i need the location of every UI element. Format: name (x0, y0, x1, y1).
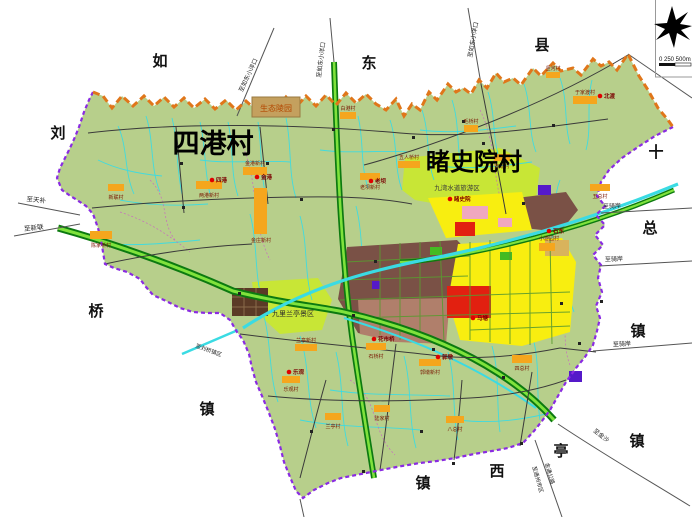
road-marker (432, 348, 435, 351)
edge-label: 刘 (50, 124, 65, 142)
village-label: 五总村 (592, 193, 607, 200)
village-label: 老坝新村 (360, 184, 380, 191)
village-label: 乐观村 (283, 386, 298, 393)
edge-label: 镇 (415, 474, 430, 492)
village-label: 新联村 (108, 194, 123, 201)
village-housing-block (464, 125, 478, 132)
settlement-label: 花市桥 (378, 335, 395, 343)
road-label: 至通州市区 (530, 465, 545, 494)
village-housing-block (108, 184, 124, 191)
road-label: 至骑岸 (613, 340, 631, 349)
village-housing-block (254, 188, 267, 234)
road-label: 金通公路 (543, 462, 557, 486)
edge-label: 桥 (88, 302, 104, 320)
village-housing-block (325, 413, 341, 420)
village-housing-block (90, 231, 112, 239)
edge-label: 如 (152, 52, 167, 70)
settlement-label: 马塘 (477, 314, 489, 322)
village-label: 毛桥村 (463, 118, 478, 125)
village-housing-block (398, 161, 420, 168)
settlement-dot (372, 337, 377, 342)
block-purple3 (569, 371, 582, 382)
village-housing-block (419, 359, 441, 366)
village-plan-map: 两港新村金港新村金庄新村新联村陈家桥村白港村老坝新村五人桥村石北村毛桥村于家渡村… (0, 0, 692, 517)
road-marker (182, 206, 185, 209)
region-title: 四港村 (173, 129, 254, 159)
village-housing-block (539, 243, 555, 251)
village-label: 白港村 (340, 105, 355, 112)
village-label: 金庄新村 (251, 237, 271, 244)
settlement-label: 乐观 (293, 368, 305, 376)
edge-label: 县 (534, 37, 549, 54)
village-label: 于家渡村 (575, 89, 595, 96)
road-marker (420, 430, 423, 433)
settlement-label: 老坝 (374, 177, 387, 185)
scale-text: 0 250 500m (659, 57, 691, 63)
block-purple1 (372, 281, 380, 289)
road-label: 至如东小洋口 (315, 41, 327, 78)
village-housing-block (573, 96, 597, 104)
road-marker (412, 136, 415, 139)
road-marker (300, 198, 303, 201)
village-label: 石桥村 (368, 353, 383, 360)
road-marker (552, 124, 555, 127)
road-marker (266, 162, 269, 165)
village-label: 小游园村 (539, 235, 559, 242)
settlement-label: 石东 (552, 227, 565, 235)
north-arrow-icon (654, 6, 692, 48)
village-label: 金港新村 (245, 160, 265, 167)
village-label: 陈家桥村 (91, 242, 111, 249)
village-housing-block (340, 112, 356, 119)
area-label: 九里兰亭景区 (272, 309, 314, 318)
edge-label: 总 (642, 219, 657, 237)
edge-label: 东 (361, 54, 376, 72)
edge-label: 亭 (553, 442, 568, 460)
settlement-label: 睹史院 (454, 195, 471, 203)
road-marker (310, 430, 313, 433)
settlement-dot (210, 178, 215, 183)
road-label: 至金沙 (592, 427, 611, 444)
settlement-dot (448, 197, 453, 202)
road-marker (452, 462, 455, 465)
area-label: 九湾水道旅游区 (434, 183, 480, 192)
block-pink (462, 206, 488, 219)
settlement-label: 郭墩 (442, 353, 454, 361)
area-label: 生态陵园 (260, 103, 292, 113)
road-marker (180, 162, 183, 165)
settlement-dot (436, 355, 441, 360)
road-marker (522, 202, 525, 205)
village-housing-block (590, 184, 610, 191)
road-marker (520, 442, 523, 445)
block-purple2 (538, 185, 551, 195)
road-label: 至天补 (26, 194, 47, 205)
village-housing-block (295, 344, 317, 351)
edge-label: 镇 (199, 400, 214, 418)
road-marker (332, 128, 335, 131)
settlement-label: 金港 (260, 173, 273, 181)
road-marker (482, 142, 485, 145)
road-label: 至骑岸 (603, 202, 621, 211)
village-label: 郭墩新村 (420, 369, 440, 376)
edge-label: 镇 (629, 432, 644, 450)
block-pink-small (498, 218, 512, 227)
road-marker (560, 302, 563, 305)
scale-bar: 0 250 500m (659, 57, 691, 66)
village-housing-block (366, 343, 386, 350)
settlement-dot (287, 370, 292, 375)
settlement-label: 北渡 (604, 92, 616, 100)
road-label: 至刘桥镇区 (194, 342, 223, 359)
village-label: 两港新村 (199, 192, 219, 199)
village-housing-block (282, 376, 300, 383)
village-label: 八总村 (447, 426, 462, 433)
village-label: 四总村 (514, 365, 529, 372)
road-label: 至骑岸 (605, 255, 623, 264)
road-label: 至如东小洋口 (237, 57, 259, 93)
village-label: 五人桥村 (399, 154, 419, 161)
edge-label: 十 (648, 143, 663, 161)
road-label: 至如东小洋口 (466, 21, 480, 58)
map-canvas: 两港新村金港新村金庄新村新联村陈家桥村白港村老坝新村五人桥村石北村毛桥村于家渡村… (0, 0, 692, 517)
region-title: 睹史院村 (426, 148, 522, 176)
road-marker (374, 260, 377, 263)
village-housing-block (512, 355, 532, 363)
settlement-dot (598, 94, 603, 99)
road-marker (362, 470, 365, 473)
village-housing-block (374, 405, 390, 412)
road-marker (600, 300, 603, 303)
settlement-label: 四港 (216, 176, 228, 184)
village-housing-block (546, 72, 560, 78)
block-red-small (455, 222, 475, 236)
edge-label: 镇 (630, 322, 645, 340)
block-red-main (447, 286, 491, 318)
road-marker (238, 292, 241, 295)
edge-label: 西 (489, 463, 504, 480)
settlement-dot (471, 316, 476, 321)
village-label: 兰亭村 (325, 423, 340, 430)
settlement-dot (547, 229, 552, 234)
settlement-dot (369, 179, 374, 184)
village-housing-block (243, 167, 267, 175)
village-label: 陆家村 (374, 415, 389, 422)
settlement-dot (255, 175, 260, 180)
road-marker (352, 314, 355, 317)
village-housing-block (446, 416, 464, 423)
road-marker (578, 342, 581, 345)
village-label: 兰亭新村 (296, 337, 316, 344)
village-label: 竖河村 (545, 65, 560, 72)
road-marker (502, 376, 505, 379)
